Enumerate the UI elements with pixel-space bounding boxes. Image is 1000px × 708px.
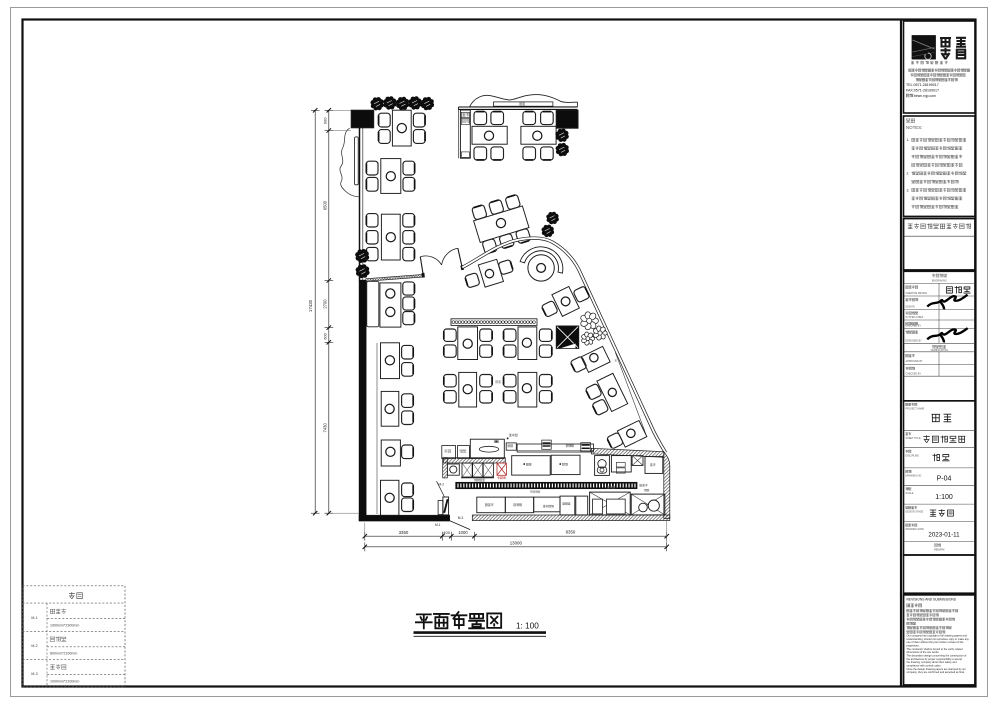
svg-text:DESIGNED BY: DESIGNED BY [906, 340, 923, 343]
svg-text:1.: 1. [907, 138, 910, 142]
svg-text:6500: 6500 [322, 200, 327, 210]
svg-text:400: 400 [443, 530, 450, 535]
svg-text:17420: 17420 [308, 299, 313, 312]
svg-text:3350: 3350 [399, 530, 409, 535]
svg-text:REMARK: REMARK [934, 549, 945, 552]
svg-text:FAX:0571-28199017: FAX:0571-28199017 [906, 88, 939, 92]
svg-text:900: 900 [322, 117, 327, 124]
svg-text:M-2: M-2 [439, 482, 445, 486]
svg-text:SHEET TITLE: SHEET TITLE [906, 437, 921, 440]
svg-text:understanding, should not repr: understanding, should not reproduce copy… [907, 637, 970, 641]
svg-text:3.: 3. [907, 188, 910, 192]
svg-text:CHECKED BY: CHECKED BY [906, 373, 922, 376]
svg-text:DRAWING NO.: DRAWING NO. [906, 475, 923, 478]
svg-text:M-3: M-3 [458, 516, 464, 520]
svg-text:REVISIONS AND SUBMISSIONS: REVISIONS AND SUBMISSIONS [907, 598, 957, 602]
svg-text:600: 600 [322, 332, 327, 339]
svg-text:SYSTEM CHIEF: SYSTEM CHIEF [906, 316, 924, 319]
svg-text:P-04: P-04 [937, 476, 952, 483]
svg-text:CREATIVE DESIGN: CREATIVE DESIGN [906, 292, 928, 295]
svg-text:DISCIPLINE: DISCIPLINE [906, 454, 920, 457]
svg-text:SCALE: SCALE [906, 492, 914, 495]
svg-text:13000: 13000 [510, 541, 523, 546]
svg-text:2023-01-11: 2023-01-11 [928, 531, 960, 538]
svg-text:1:100: 1:100 [935, 494, 953, 501]
svg-text:2700: 2700 [322, 299, 327, 309]
svg-text:ENGRAVING: ENGRAVING [932, 280, 947, 283]
svg-text:1900mm*2300mm: 1900mm*2300mm [50, 624, 79, 628]
svg-text:CHECKED BY: CHECKED BY [906, 325, 922, 328]
svg-text:PROJECT NAME: PROJECT NAME [906, 407, 925, 410]
svg-text:DRAWING DATE: DRAWING DATE [906, 528, 925, 531]
svg-text:bewn.rxjp.com: bewn.rxjp.com [914, 94, 936, 98]
svg-text:dimensions of the site works.: dimensions of the site works. [907, 650, 940, 654]
svg-text:company, they are confirmed an: company, they are confirmed and accepted… [907, 670, 965, 674]
svg-text:TEL:0571-28199017: TEL:0571-28199017 [906, 83, 939, 87]
svg-text:M-1: M-1 [31, 616, 37, 620]
svg-text:1000: 1000 [458, 530, 468, 535]
svg-text:the drawing; company about the: the drawing; company about their safety … [907, 660, 958, 664]
svg-text:1000mm*2100mm: 1000mm*2100mm [50, 679, 79, 683]
svg-text:M-2: M-2 [31, 644, 37, 648]
svg-text:1: 100: 1: 100 [516, 622, 539, 631]
svg-text:7430: 7430 [322, 422, 327, 432]
svg-text:800mm*2100mm: 800mm*2100mm [50, 652, 77, 656]
svg-text:APPROVED BY: APPROVED BY [906, 360, 924, 363]
svg-text:8350: 8350 [566, 530, 576, 535]
svg-text:2.: 2. [907, 172, 910, 176]
svg-text:M-1: M-1 [435, 523, 441, 527]
svg-text:DESIGN: DESIGN [906, 306, 915, 309]
svg-text:DESIGN STAGE: DESIGN STAGE [906, 511, 924, 514]
svg-text:NOTES:: NOTES: [906, 125, 922, 130]
svg-text:M-3: M-3 [31, 672, 37, 676]
